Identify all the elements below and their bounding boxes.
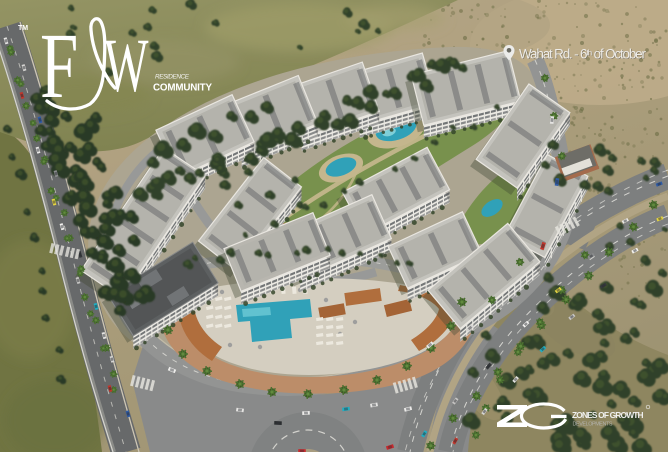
svg-text:TM: TM	[18, 25, 28, 32]
svg-text:COMMUNITY: COMMUNITY	[153, 83, 212, 94]
svg-text:Wahat Rd. - 6th of October: Wahat Rd. - 6th of October	[519, 47, 647, 62]
svg-text:ZONES OF GROWTH: ZONES OF GROWTH	[572, 410, 644, 420]
svg-text:W: W	[104, 24, 149, 108]
svg-text:RESIDENCE: RESIDENCE	[155, 74, 190, 81]
svg-text:DEVELOPMENTS: DEVELOPMENTS	[573, 422, 613, 428]
